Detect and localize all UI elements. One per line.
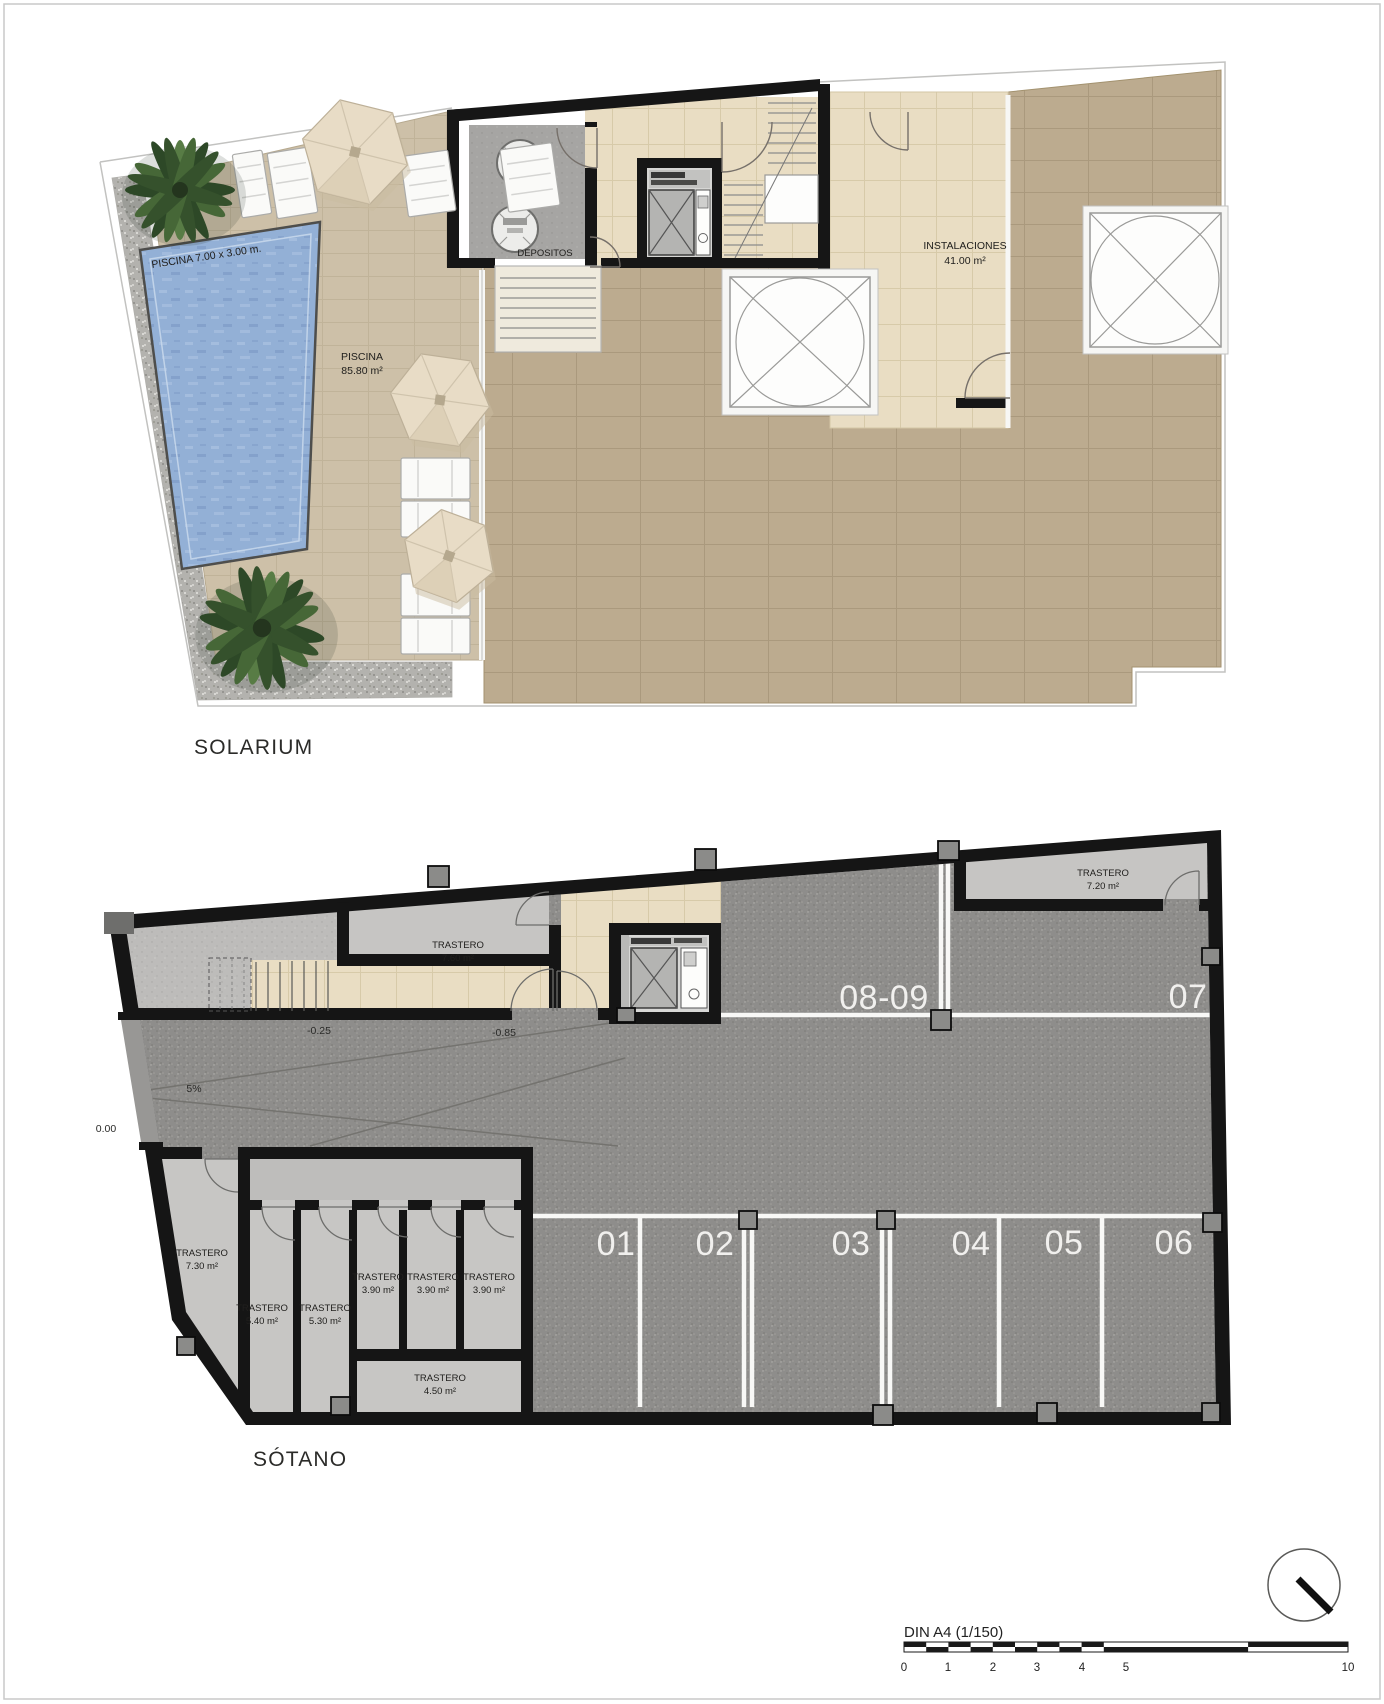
level-zero: 0.00 [96,1123,117,1135]
parking-space-02: 02 [696,1225,735,1263]
trastero-390c-area: 3.90 m² [473,1285,505,1296]
trastero-730-name: TRASTERO [176,1248,228,1259]
trastero-390a-area: 3.90 m² [362,1285,394,1296]
level-minus-085: -0.85 [492,1027,516,1039]
trastero-390b-name: TRASTERO [407,1272,459,1283]
floorplan-drawing: PISCINA 7.00 x 3.00 m. PISCINA 85.80 m² … [0,0,1384,1704]
instalaciones-area-label: 41.00 m² [944,255,986,267]
terrace-stairs [495,266,601,352]
scale-tick-10: 10 [1342,1662,1355,1674]
storage-block-corridor [250,1159,521,1200]
scale-bar: DIN A4 (1/150) 0 1 2 3 4 5 10 [901,1624,1355,1674]
scale-tick-2: 2 [990,1662,996,1674]
parking-space-01: 01 [597,1225,636,1263]
instalaciones-name-label: INSTALACIONES [923,240,1006,252]
solarium-plan: PISCINA 7.00 x 3.00 m. PISCINA 85.80 m² … [100,62,1228,759]
scale-tick-3: 3 [1034,1662,1040,1674]
level-minus-025: -0.25 [307,1025,331,1037]
trastero-390a-name: TRASTERO [352,1272,404,1283]
trastero-450-name: TRASTERO [414,1373,466,1384]
trastero-730-area: 7.30 m² [186,1261,218,1272]
trastero-390b-area: 3.90 m² [417,1285,449,1296]
parking-space-06: 06 [1155,1224,1194,1262]
trastero-760-name: TRASTERO [432,940,484,951]
trastero-530-area: 5.30 m² [309,1316,341,1327]
parking-space-05: 05 [1045,1224,1084,1262]
trastero-540-name: TRASTERO [236,1303,288,1314]
north-indicator-icon [1268,1549,1340,1621]
scale-label: DIN A4 (1/150) [904,1624,1003,1641]
trastero-390c-name: TRASTERO [463,1272,515,1283]
parking-space-07: 07 [1169,978,1208,1016]
sotano-title: SÓTANO [253,1448,347,1471]
parking-space-04: 04 [952,1225,991,1263]
scale-tick-0: 0 [901,1662,907,1674]
parking-space-03: 03 [832,1225,871,1263]
depositos-label: DEPOSITOS [517,248,572,259]
trastero-720-area: 7.20 m² [1087,881,1119,892]
basement-corridor [251,960,561,1008]
pool-area-label: 85.80 m² [341,365,383,377]
scale-bar-segments [904,1642,1348,1652]
scale-tick-4: 4 [1079,1662,1086,1674]
sotano-plan: 08-09 07 01 02 03 04 05 06 [96,830,1231,1471]
pool: PISCINA 7.00 x 3.00 m. [140,222,320,569]
trastero-760-area: 7.60 m² [442,953,474,964]
deposit-tank-icon [492,206,538,252]
skylight [1083,206,1228,354]
floorplan-sheet: PISCINA 7.00 x 3.00 m. PISCINA 85.80 m² … [0,0,1384,1704]
pool-name-label: PISCINA [341,351,383,363]
skylight [722,269,878,415]
trastero-540-area: 5.40 m² [246,1316,278,1327]
solarium-title: SOLARIUM [194,736,313,759]
elevator-icon [637,158,722,267]
palm-tree-icon [122,136,246,246]
trastero-530-name: TRASTERO [299,1303,351,1314]
trastero-450-area: 4.50 m² [424,1386,456,1397]
parking-space-08-09: 08-09 [839,979,928,1017]
trastero-720-name: TRASTERO [1077,868,1129,879]
scale-tick-1: 1 [945,1662,951,1674]
ramp-slope: 5% [186,1083,201,1095]
scale-tick-5: 5 [1123,1662,1129,1674]
